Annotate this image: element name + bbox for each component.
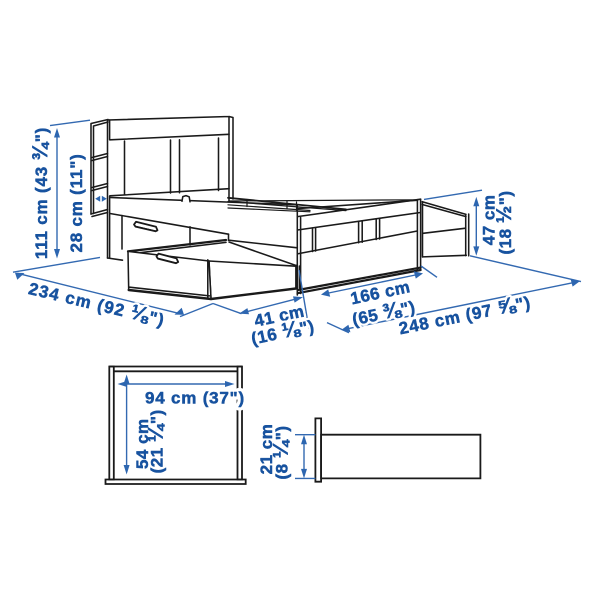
svg-text:(21 ¼"): (21 ¼"): [145, 409, 168, 473]
svg-text:94 cm (37"): 94 cm (37"): [145, 389, 245, 408]
svg-text:28 cm (11"): 28 cm (11"): [67, 153, 86, 252]
svg-text:111 cm (43 ¾"): 111 cm (43 ¾"): [29, 127, 52, 259]
svg-text:(8 ¼"): (8 ¼"): [270, 425, 293, 479]
svg-text:(18 ½"): (18 ½"): [493, 190, 516, 254]
